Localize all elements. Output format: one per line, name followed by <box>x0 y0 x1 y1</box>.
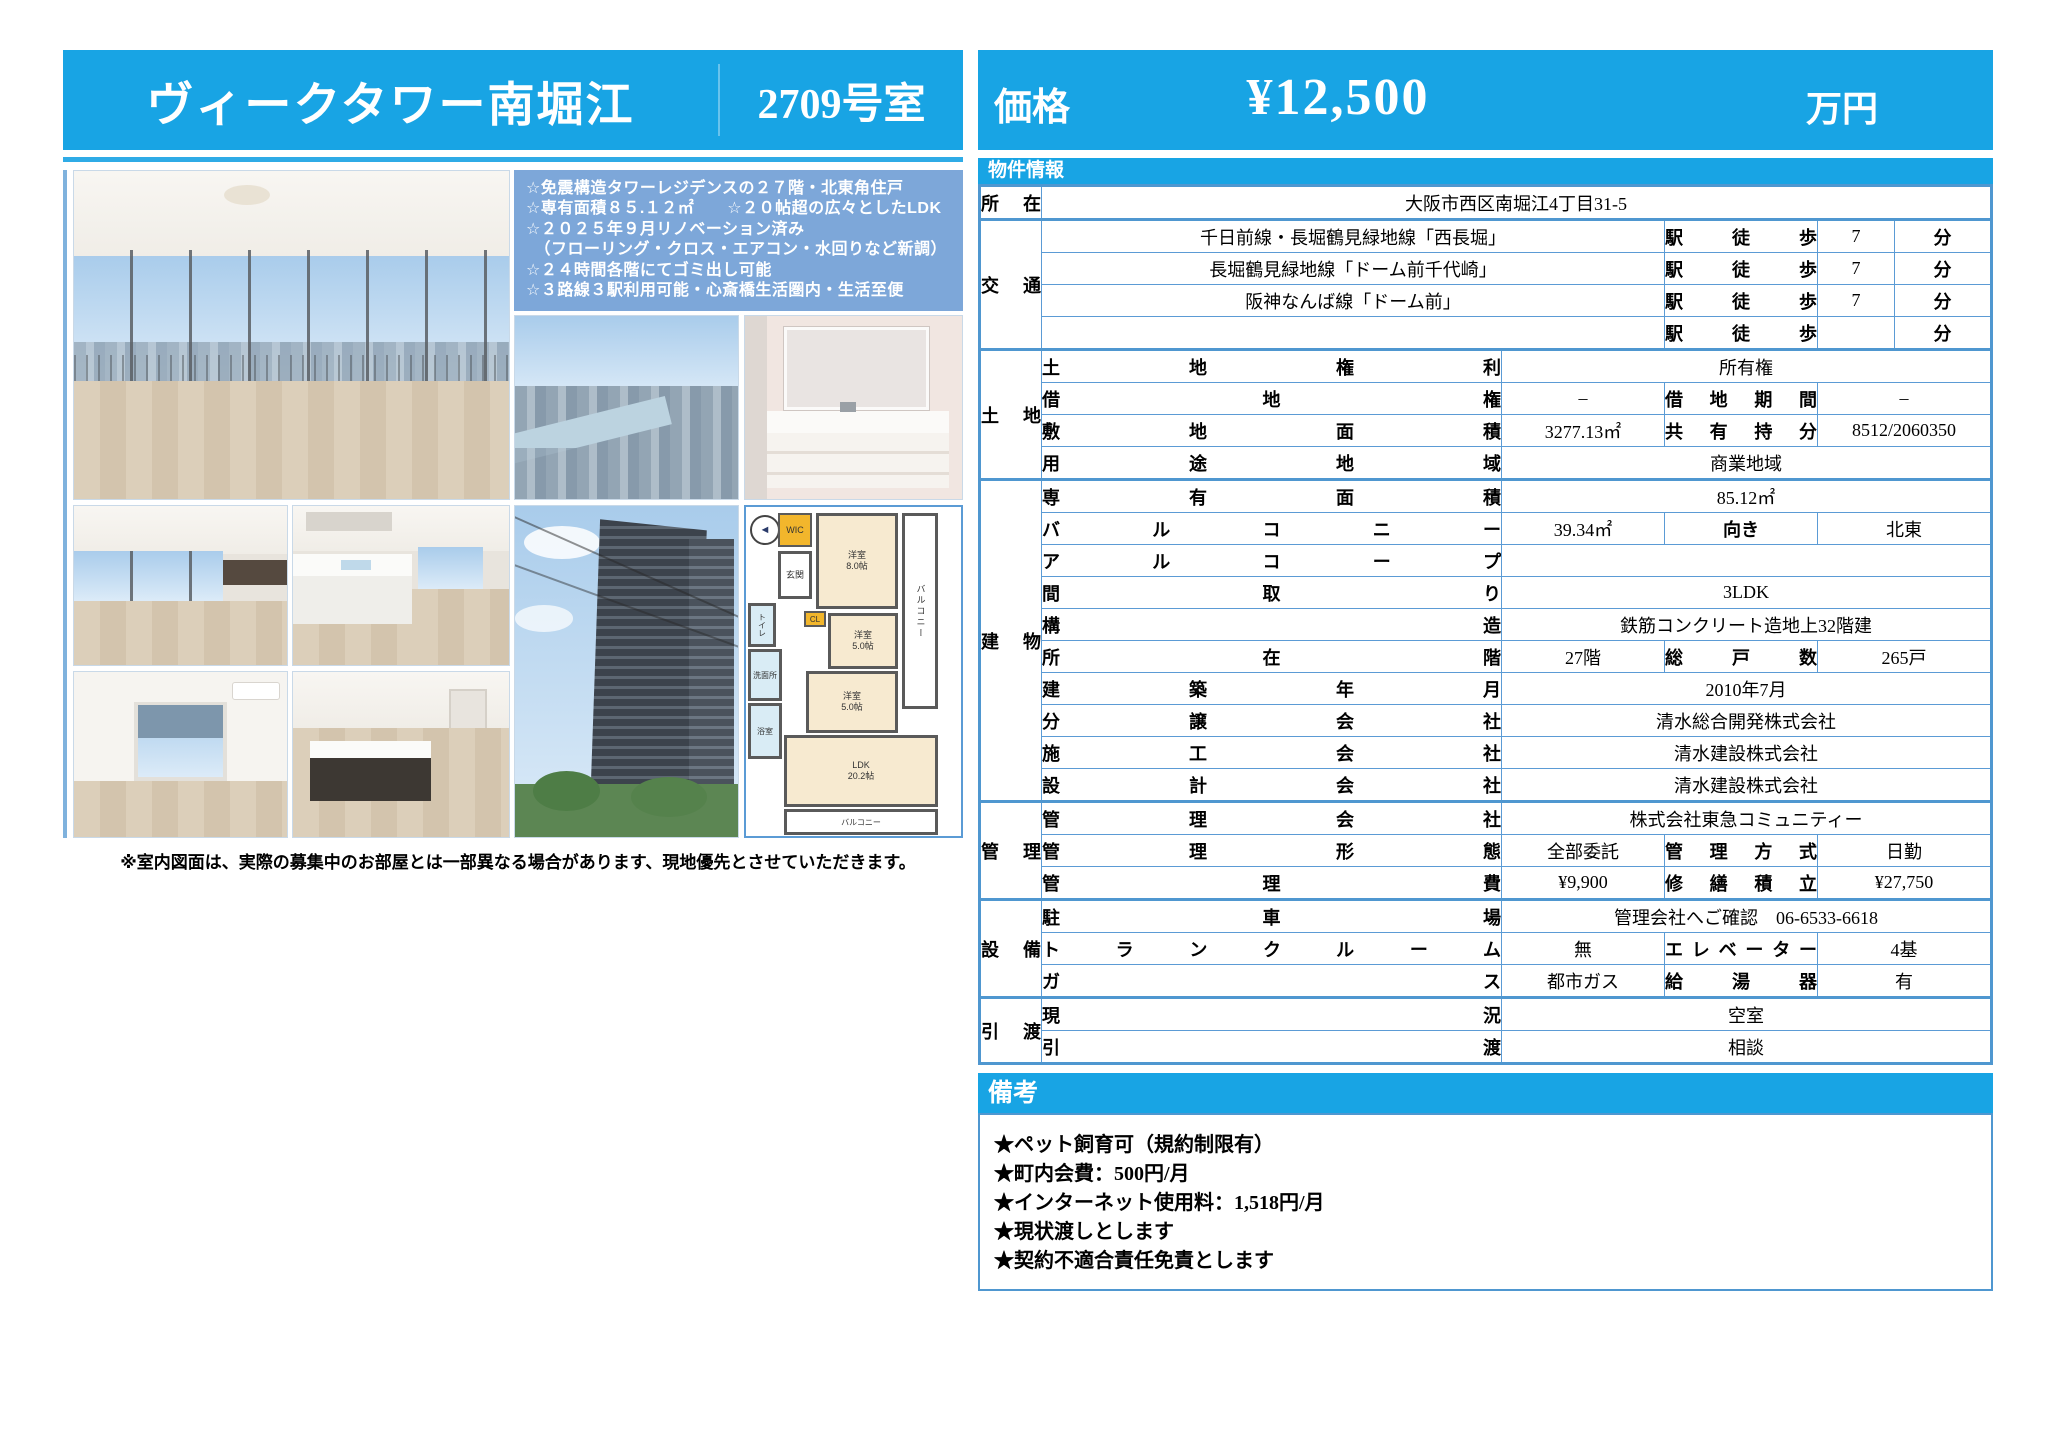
field-label: バ ル コ ニ ー <box>1042 513 1502 545</box>
section-label: 設 備 <box>980 900 1042 998</box>
field-value: 3LDK <box>1502 577 1992 609</box>
washroom-drawers <box>767 433 949 488</box>
field-value: 有 <box>1818 965 1992 998</box>
cloud <box>515 605 573 631</box>
row-structure: 構 造 鉄筋コンクリート造地上32階建 <box>980 609 1992 641</box>
field-label: 用 途 地 域 <box>1042 447 1502 480</box>
field-value: 所有権 <box>1502 350 1992 383</box>
field-label: 施 工 会 社 <box>1042 737 1502 769</box>
field-value: 全部委託 <box>1502 835 1665 867</box>
plan-label: 洋室8.0帖 <box>846 550 868 572</box>
row-designer: 設 計 会 社 清水建設株式会社 <box>980 769 1992 802</box>
field-label: 総 戸 数 <box>1665 641 1818 673</box>
section-label: 建 物 <box>980 480 1042 802</box>
section-label: 引 渡 <box>980 998 1042 1064</box>
row-current-status: 引 渡 現 況 空室 <box>980 998 1992 1031</box>
feature-line: ☆免震構造タワーレジデンスの２７階・北東角住戸 <box>526 179 951 199</box>
field-label: 管 理 費 <box>1042 867 1502 900</box>
plan-label: トイレ <box>757 613 768 637</box>
plan-wic: WIC <box>778 513 812 547</box>
field-value: 39.34㎡ <box>1502 513 1665 545</box>
field-value: 27階 <box>1502 641 1665 673</box>
plan-label: 洋室5.0帖 <box>852 630 874 652</box>
photo-room-ac <box>73 671 288 838</box>
row-transit-2: 長堀鶴見緑地線「ドーム前千代崎」 駅 徒 歩 7 分 <box>980 253 1992 285</box>
field-value: 清水建設株式会社 <box>1502 769 1992 802</box>
row-exclusive-area: 建 物 専 有 面 積 85.12㎡ <box>980 480 1992 513</box>
field-value: ¥9,900 <box>1502 867 1665 900</box>
field-value: 3277.13㎡ <box>1502 415 1665 447</box>
walk-label: 駅 徒 歩 <box>1665 317 1818 350</box>
field-value: 清水建設株式会社 <box>1502 737 1992 769</box>
photo-window-sky <box>418 547 483 588</box>
price-unit: 万円 <box>1806 80 1878 132</box>
tower-building-side <box>689 539 734 797</box>
plan-label: CL <box>810 614 820 625</box>
field-value: 管理会社へご確認 06-6533-6618 <box>1502 900 1992 933</box>
field-value: – <box>1818 383 1992 415</box>
field-value: ¥27,750 <box>1818 867 1992 900</box>
row-transit-1: 交 通 千日前線・長堀鶴見緑地線「西長堀」 駅 徒 歩 7 分 <box>980 220 1992 253</box>
field-label: エレベーター <box>1665 933 1818 965</box>
field-value: 北東 <box>1818 513 1992 545</box>
row-alcove: ア ル コ ー プ <box>980 545 1992 577</box>
plan-label: 浴室 <box>757 726 773 737</box>
ceiling-light <box>224 185 270 205</box>
field-label: 管 理 形 態 <box>1042 835 1502 867</box>
minutes-unit: 分 <box>1895 317 1992 350</box>
section-label: 土 地 <box>980 350 1042 480</box>
walk-minutes: 7 <box>1818 285 1895 317</box>
field-label: 敷 地 面 積 <box>1042 415 1502 447</box>
transit-line <box>1042 317 1665 350</box>
field-label: 設 計 会 社 <box>1042 769 1502 802</box>
air-conditioner <box>232 682 281 701</box>
transit-line: 阪神なんば線「ドーム前」 <box>1042 285 1665 317</box>
range-hood <box>306 512 392 531</box>
field-value: 相談 <box>1502 1031 1992 1064</box>
field-label: 現 況 <box>1042 998 1502 1031</box>
row-address: 所 在 大阪市西区南堀江4丁目31-5 <box>980 186 1992 220</box>
field-label: 建 築 年 月 <box>1042 673 1502 705</box>
cloud <box>524 526 600 559</box>
remark-line: ★ペット飼育可（規約制限有） <box>994 1131 1977 1160</box>
photo-tower-exterior <box>514 505 739 838</box>
field-value: 商業地域 <box>1502 447 1992 480</box>
row-balcony: バ ル コ ニ ー 39.34㎡ 向き 北東 <box>980 513 1992 545</box>
field-label: トランクルーム <box>1042 933 1502 965</box>
real-estate-flyer: { "header": { "title": "ヴィークタワー南堀江", "ro… <box>0 0 2056 1454</box>
field-value: 株式会社東急コミュニティー <box>1502 802 1992 835</box>
compass-icon: ◄ <box>750 515 780 545</box>
field-label: 借 地 権 <box>1042 383 1502 415</box>
row-developer: 分 譲 会 社 清水総合開発株式会社 <box>980 705 1992 737</box>
property-info-table: 所 在 大阪市西区南堀江4丁目31-5 交 通 千日前線・長堀鶴見緑地線「西長堀… <box>978 184 1993 1065</box>
washroom-counter <box>767 411 949 433</box>
field-label: 間 取 り <box>1042 577 1502 609</box>
field-label: ア ル コ ー プ <box>1042 545 1502 577</box>
field-label: 管 理 会 社 <box>1042 802 1502 835</box>
section-label: 交 通 <box>980 220 1042 350</box>
row-gas: ガ ス 都市ガス 給 湯 器 有 <box>980 965 1992 998</box>
field-label: 共 有 持 分 <box>1665 415 1818 447</box>
room-number: 2709号室 <box>720 70 963 131</box>
price-band: 価格 ¥12,500 万円 <box>978 50 1993 150</box>
field-value: 4基 <box>1818 933 1992 965</box>
property-title: ヴィークタワー南堀江 <box>63 66 718 135</box>
window-frames <box>74 551 223 602</box>
section-label: 管 理 <box>980 802 1042 900</box>
walk-label: 駅 徒 歩 <box>1665 220 1818 253</box>
row-mgmt-form: 管 理 形 態 全部委託 管 理 方 式 日勤 <box>980 835 1992 867</box>
row-mgmt-fee: 管 理 費 ¥9,900 修 繕 積 立 ¥27,750 <box>980 867 1992 900</box>
floorplan-disclaimer: ※室内図面は、実際の募集中のお部屋とは一部異なる場合があります、現地優先とさせて… <box>73 848 963 873</box>
field-label: 専 有 面 積 <box>1042 480 1502 513</box>
minutes-unit: 分 <box>1895 285 1992 317</box>
island-counter-base <box>310 758 431 801</box>
field-value: 2010年7月 <box>1502 673 1992 705</box>
city-buildings-front <box>515 448 738 499</box>
photo-city-view <box>514 315 739 500</box>
photo-living-main <box>73 170 510 500</box>
plan-washroom: 洗面所 <box>748 649 782 701</box>
field-label: 給 湯 器 <box>1665 965 1818 998</box>
minutes-unit: 分 <box>1895 220 1992 253</box>
remark-line: ★町内会費：500円/月 <box>994 1160 1977 1189</box>
feature-line: ☆３路線３駅利用可能・心斎橋生活圏内・生活至便 <box>526 281 951 301</box>
remarks-section-header: 備考 <box>978 1073 1993 1113</box>
plan-label: WIC <box>786 525 804 536</box>
plan-closet: CL <box>804 611 826 627</box>
plan-balcony-side: バルコニー <box>902 513 938 709</box>
remark-line: ★現状渡しとします <box>994 1218 1977 1247</box>
photo-floor <box>74 781 287 837</box>
walk-label: 駅 徒 歩 <box>1665 253 1818 285</box>
photo-floor <box>74 601 287 665</box>
price-value: ¥12,500 <box>1128 68 1548 127</box>
feature-line: （フローリング・クロス・エアコン・水回りなど新調） <box>526 240 951 260</box>
remarks-box: ★ペット飼育可（規約制限有） ★町内会費：500円/月 ★インターネット使用料：… <box>978 1113 1993 1291</box>
remark-line: ★契約不適合責任免責とします <box>994 1247 1977 1276</box>
field-value: 無 <box>1502 933 1665 965</box>
field-label: 土 地 権 利 <box>1042 350 1502 383</box>
tree <box>631 777 707 817</box>
washroom-wall <box>745 316 767 499</box>
walk-minutes: 7 <box>1818 253 1895 285</box>
field-value: 8512/2060350 <box>1818 415 1992 447</box>
field-label: 所 在 階 <box>1042 641 1502 673</box>
plan-label: バルコニー <box>841 817 881 828</box>
plan-toilet: トイレ <box>748 603 776 647</box>
section-label: 所 在 <box>980 186 1042 220</box>
info-section-header: 物件情報 <box>978 158 1993 184</box>
row-zoning: 用 途 地 域 商業地域 <box>980 447 1992 480</box>
window-frames <box>74 250 509 381</box>
feature-line: ☆専有面積８５.１２㎡ ☆２０帖超の広々としたLDK <box>526 199 951 219</box>
field-value: 清水総合開発株式会社 <box>1502 705 1992 737</box>
washroom-mirror <box>784 327 929 410</box>
row-floor: 所 在 階 27階 総 戸 数 265戸 <box>980 641 1992 673</box>
field-value: 空室 <box>1502 998 1992 1031</box>
row-transit-3: 阪神なんば線「ドーム前」 駅 徒 歩 7 分 <box>980 285 1992 317</box>
field-label: ガ ス <box>1042 965 1502 998</box>
plan-label: LDK20.2帖 <box>848 760 875 782</box>
plan-room-8: 洋室8.0帖 <box>816 513 898 609</box>
washroom-faucet <box>840 402 856 412</box>
walk-minutes: 7 <box>1818 220 1895 253</box>
plan-bath: 浴室 <box>748 703 782 759</box>
plan-label: 洗面所 <box>753 670 777 681</box>
property-info-column: 物件情報 所 在 大阪市西区南堀江4丁目31-5 交 通 千日前線・長堀鶴見緑地… <box>978 158 1993 1291</box>
photo-frame-left-line <box>63 170 67 838</box>
feature-line: ☆２０２５年９月リノベーション済み <box>526 220 951 240</box>
photo-ceiling <box>74 506 287 554</box>
field-label: 引 渡 <box>1042 1031 1502 1064</box>
plan-label: 洋室5.0帖 <box>841 691 863 713</box>
photo-ceiling <box>74 171 509 256</box>
photo-floor <box>412 589 509 665</box>
field-value: 鉄筋コンクリート造地上32階建 <box>1502 609 1992 641</box>
plan-room-5b: 洋室5.0帖 <box>806 671 898 733</box>
row-layout: 間 取 り 3LDK <box>980 577 1992 609</box>
row-parking: 設 備 駐 車 場 管理会社へご確認 06-6533-6618 <box>980 900 1992 933</box>
row-site-area: 敷 地 面 積 3277.13㎡ 共 有 持 分 8512/2060350 <box>980 415 1992 447</box>
photo-washroom <box>744 315 963 500</box>
kitchen-sink <box>341 560 371 570</box>
features-box: ☆免震構造タワーレジデンスの２７階・北東角住戸 ☆専有面積８５.１２㎡ ☆２０帖… <box>514 170 963 311</box>
photo-kitchen-2 <box>292 671 510 838</box>
field-value: 265戸 <box>1818 641 1992 673</box>
plan-label: 玄関 <box>786 570 804 581</box>
transit-line: 長堀鶴見緑地線「ドーム前千代崎」 <box>1042 253 1665 285</box>
row-mgmt-company: 管 理 管 理 会 社 株式会社東急コミュニティー <box>980 802 1992 835</box>
kitchen-cabinet <box>293 576 412 624</box>
field-label: 分 譲 会 社 <box>1042 705 1502 737</box>
plan-genkan: 玄関 <box>778 551 812 599</box>
transit-line: 千日前線・長堀鶴見緑地線「西長堀」 <box>1042 220 1665 253</box>
plan-ldk: LDK20.2帖 <box>784 735 938 807</box>
row-trunk-room: トランクルーム 無 エレベーター 4基 <box>980 933 1992 965</box>
row-builder: 施 工 会 社 清水建設株式会社 <box>980 737 1992 769</box>
field-label: 借 地 期 間 <box>1665 383 1818 415</box>
field-value: 85.12㎡ <box>1502 480 1992 513</box>
row-land-rights: 土 地 土 地 権 利 所有権 <box>980 350 1992 383</box>
walk-label: 駅 徒 歩 <box>1665 285 1818 317</box>
remark-line: ★インターネット使用料：1,518円/月 <box>994 1189 1977 1218</box>
row-built: 建 築 年 月 2010年7月 <box>980 673 1992 705</box>
field-value <box>1502 545 1992 577</box>
field-label: 向き <box>1665 513 1818 545</box>
tree <box>533 771 600 811</box>
plan-balcony-bottom: バルコニー <box>784 809 938 835</box>
row-handover: 引 渡 相談 <box>980 1031 1992 1064</box>
row-transit-4: 駅 徒 歩 分 <box>980 317 1992 350</box>
photo-kitchen <box>292 505 510 666</box>
field-value: – <box>1502 383 1665 415</box>
field-label: 管 理 方 式 <box>1665 835 1818 867</box>
row-leasehold: 借 地 権 – 借 地 期 間 – <box>980 383 1992 415</box>
header-title-band: ヴィークタワー南堀江 2709号室 <box>63 50 963 150</box>
plan-label: バルコニー <box>915 584 926 639</box>
photo-living-2 <box>73 505 288 666</box>
header-rule <box>63 157 963 162</box>
field-label: 構 造 <box>1042 609 1502 641</box>
price-label: 価格 <box>994 76 1070 131</box>
plan-room-5a: 洋室5.0帖 <box>828 613 898 669</box>
address-value: 大阪市西区南堀江4丁目31-5 <box>1042 186 1992 220</box>
window-city <box>138 705 223 738</box>
island-counter-top <box>310 741 431 758</box>
feature-line: ☆２４時間各階にてゴミ出し可能 <box>526 261 951 281</box>
kitchen-counter-dark <box>223 560 287 585</box>
field-value: 日勤 <box>1818 835 1992 867</box>
minutes-unit: 分 <box>1895 253 1992 285</box>
field-label: 修 繕 積 立 <box>1665 867 1818 900</box>
field-label: 駐 車 場 <box>1042 900 1502 933</box>
photo-floor <box>74 381 509 499</box>
walk-minutes <box>1818 317 1895 350</box>
field-value: 都市ガス <box>1502 965 1665 998</box>
floor-plan: ◄ WIC 玄関 洋室8.0帖 バルコニー トイレ CL 洋室5.0帖 洗面所 … <box>744 505 963 838</box>
